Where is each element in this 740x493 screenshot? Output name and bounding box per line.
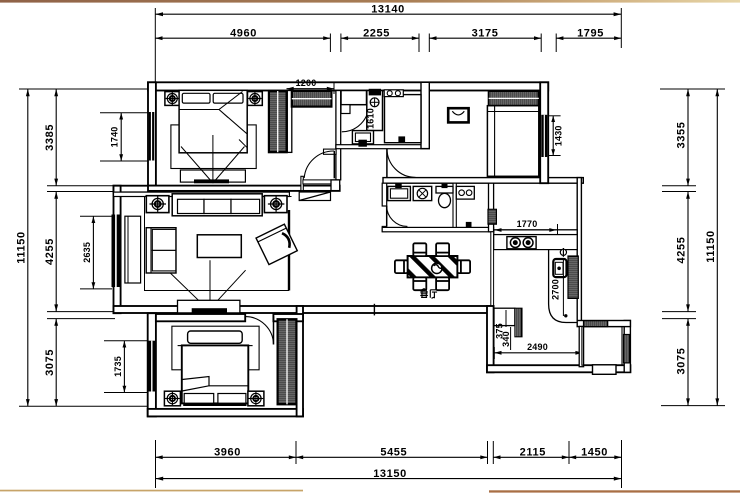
svg-text:3960: 3960 [214,447,241,459]
svg-text:4960: 4960 [230,27,257,39]
svg-text:1735: 1735 [113,356,123,377]
svg-text:2255: 2255 [363,27,390,39]
svg-text:11150: 11150 [705,230,717,262]
svg-text:2490: 2490 [527,342,548,352]
svg-text:3075: 3075 [44,349,56,376]
svg-text:4255: 4255 [676,237,688,264]
svg-text:1200: 1200 [296,78,317,88]
svg-text:2700: 2700 [551,279,561,300]
svg-text:1450: 1450 [581,447,608,459]
svg-text:3355: 3355 [676,122,688,149]
svg-text:5455: 5455 [380,447,407,459]
svg-text:3385: 3385 [44,124,56,151]
svg-text:13140: 13140 [371,4,405,16]
svg-text:2115: 2115 [520,447,546,459]
svg-text:340: 340 [501,331,511,347]
svg-text:4255: 4255 [44,238,56,265]
svg-text:11150: 11150 [16,231,28,263]
svg-text:1610: 1610 [365,108,375,129]
svg-text:1430: 1430 [554,125,564,146]
svg-text:1740: 1740 [110,126,120,147]
svg-text:3075: 3075 [676,348,688,375]
svg-text:2635: 2635 [82,242,92,263]
svg-text:3175: 3175 [472,27,499,39]
svg-text:1770: 1770 [517,219,538,229]
svg-text:1795: 1795 [577,27,604,39]
svg-text:13150: 13150 [373,468,407,480]
